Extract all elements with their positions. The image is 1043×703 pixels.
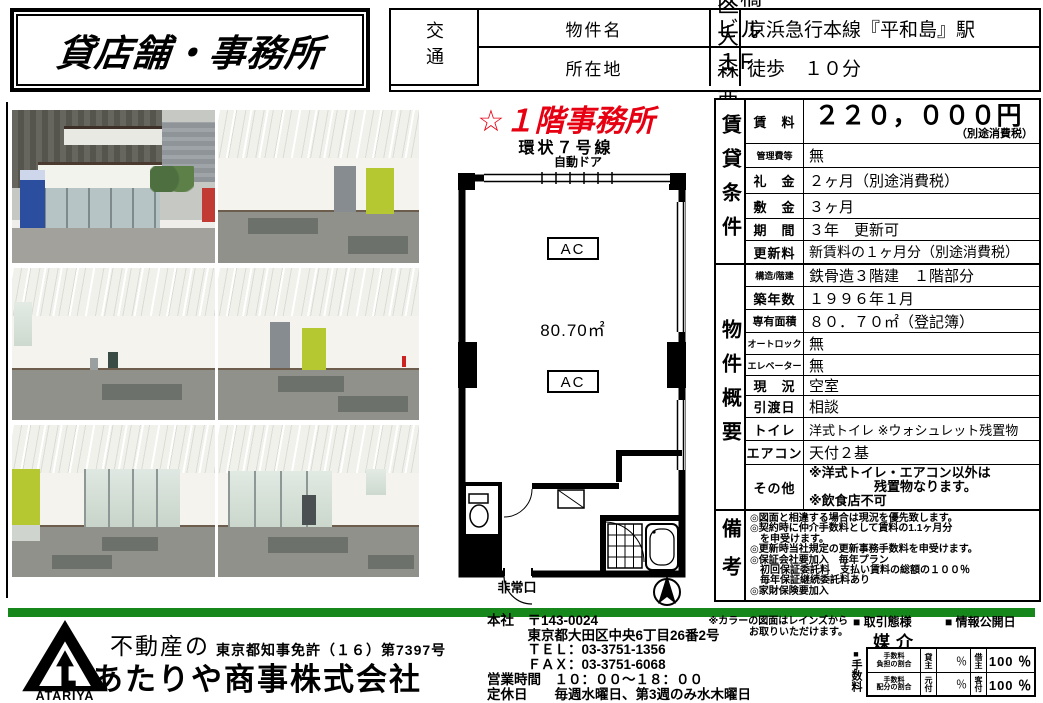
aircon-label: エアコン [746,441,804,464]
overview-section: 物件概要 構造/階建 鉄骨造３階建 １階部分 築年数 １９９６年１月 専有面積 … [716,265,1039,511]
built-year-label: 築年数 [746,287,804,309]
fee-row2-agent-pct: ％ [936,672,970,695]
table-row: 専有面積 ８０．７０㎡（登記簿） [746,310,1039,333]
photo-interior-1 [218,110,419,263]
status-label: 現 況 [746,376,804,395]
fee-row1-lessor: 貸主 [920,649,936,672]
table-row: 現 況 空室 [746,376,1039,396]
table-row: その他 ※洋式トイレ・エアコン以外は 残置物なります。 ※飲食店不可 [746,465,1039,509]
handover-label: 引渡日 [746,396,804,417]
rent-tax-note: （別途消費税） [804,128,1033,140]
title-box: 貸店舗・事務所 [10,8,370,92]
photo-interior-3 [218,268,419,420]
ac-unit-1-label: AC [561,241,586,258]
rent-amount: ２２０，０００円 [804,104,1033,128]
bathtub [646,524,678,570]
fee-row1-name: 手数料 負担の割合 [868,649,920,672]
structure-label: 構造/階建 [746,265,804,286]
elevator-value: 無 [804,355,1039,375]
area-label: 80.70㎡ [540,321,606,340]
floor-area-label: 専有面積 [746,310,804,332]
renewal-fee-label: 更新料 [746,241,804,263]
company-name: あたりや商事株式会社 [92,654,422,699]
property-name-label: 物件名 [479,10,711,48]
table-row: 引渡日 相談 [746,396,1039,418]
overview-section-label: 物件概要 [716,265,746,509]
elevator-label: エレベーター [746,355,804,375]
mgmt-fee-label: 管理費等 [746,144,804,167]
photo-interior-2 [12,268,215,420]
table-row: 礼 金 ２ヶ月（別途消費税） [746,168,1039,194]
logo-text: ATARIYA [36,689,95,702]
ac-unit-2-label: AC [561,374,586,391]
floor-area-value: ８０．７０㎡（登記簿） [804,310,1039,332]
table-row: 敷 金 ３ヶ月 [746,194,1039,219]
table-row: 築年数 １９９６年１月 [746,287,1039,310]
structure-value: 鉄骨造３階建 １階部分 [804,265,1039,286]
photo-interior-4 [12,425,215,577]
aircon-value: 天付２基 [804,441,1039,464]
autolock-label: オートロック [746,333,804,354]
other-value: ※洋式トイレ・エアコン以外は 残置物なります。 ※飲食店不可 [804,465,1039,509]
term-value: ３年 更新可 [804,219,1039,240]
fee-row2-broker: 客付 [970,672,986,695]
key-money-value: ２ヶ月（別途消費税） [804,168,1039,193]
key-money-label: 礼 金 [746,168,804,193]
notes-section-label: 備考 [716,511,746,600]
conditions-table: 賃貸条件 賃 料 ２２０，０００円 （別途消費税） 管理費等 無 礼 金 ２ヶ月… [714,98,1041,602]
rent-section: 賃貸条件 賃 料 ２２０，０００円 （別途消費税） 管理費等 無 礼 金 ２ヶ月… [716,100,1039,265]
renewal-fee-value: 新賃料の１ヶ月分（別途消費税） [804,241,1039,263]
photo-interior-5 [218,425,419,577]
fee-row2-broker-pct: 100 ％ [986,672,1034,695]
photo-exterior [12,110,215,263]
toilet-label: トイレ [746,418,804,440]
exit-opening [504,567,532,578]
handover-value: 相談 [804,396,1039,417]
address-label: 所在地 [479,48,711,86]
table-row: 賃 料 ２２０，０００円 （別途消費税） [746,100,1039,144]
autolock-value: 無 [804,333,1039,354]
term-label: 期 間 [746,219,804,240]
deposit-value: ３ヶ月 [804,194,1039,218]
rent-section-label: 賃貸条件 [716,100,746,263]
table-row: 管理費等 無 [746,144,1039,168]
mgmt-fee-value: 無 [804,144,1039,167]
table-row: 更新料 新賃料の１ヶ月分（別途消費税） [746,241,1039,263]
transport-label: 交通 [391,10,479,86]
north-arrow-icon [654,575,680,605]
auto-door-label: 自動ドア [554,154,602,169]
plan-corner-pillar-tr [669,173,686,190]
fee-row1-lessee-pct: 100 ％ [986,649,1034,672]
title-box-inner: 貸店舗・事務所 [16,14,364,86]
fee-table: 手数料 負担の割合 貸主 ％ 借主 100 ％ 手数料 配分の割合 元付 ％ 客… [866,647,1036,697]
floor-plan: 自動ドア AC 80.70㎡ AC [438,152,710,608]
station-value: 京浜急行本線『平和島』駅 [741,10,1039,48]
table-row: エアコン 天付２基 [746,441,1039,465]
table-row: エレベーター 無 [746,355,1039,376]
left-edge-rule [6,102,8,598]
address-value: 大田区大森西１-６-６ [711,48,741,86]
fee-label: ■ 手数料 [849,649,863,692]
table-row: オートロック 無 [746,333,1039,355]
plan-corner-pillar-tl [458,173,475,190]
publish-date-label: ■ 情報公開日 [945,613,1016,630]
fee-row1-lessee: 借主 [970,649,986,672]
table-row: 期 間 ３年 更新可 [746,219,1039,241]
page-title: 貸店舗・事務所 [54,23,326,77]
rent-label: 賃 料 [746,100,804,143]
emergency-exit-label: 非常口 [497,580,536,595]
walk-value: 徒歩 １０分 [741,48,1039,86]
plan-pillar-right [667,342,686,388]
toilet-value: 洋式トイレ ※ウォシュレット残置物 [804,418,1039,440]
notes-section: 備考 ◎図面と相違する場合は現況を優先致します。 ◎契約時に仲介手数料として賃料… [716,511,1039,600]
fee-row1-lessor-pct: ％ [936,649,970,672]
deposit-label: 敷 金 [746,194,804,218]
property-header-table: 物件名 大橋ビル １F 交通 京浜急行本線『平和島』駅 所在地 大田区大森西１-… [389,8,1041,92]
plan-pillar-left [458,342,477,388]
toilet-tank [469,494,488,503]
status-value: 空室 [804,376,1039,395]
fee-square-mark: ■ [853,649,858,659]
table-row: 構造/階建 鉄骨造３階建 １階部分 [746,265,1039,287]
table-row: トイレ 洋式トイレ ※ウォシュレット残置物 [746,418,1039,441]
other-label: その他 [746,465,804,509]
plan-solid-wall-block [462,536,502,574]
toilet-bowl [470,505,488,527]
fee-row2-agent: 元付 [920,672,936,695]
color-plan-note: ※カラーの図面はレインズから お取りいただけます。 [686,616,848,638]
fee-row2-name: 手数料 配分の割合 [868,672,920,695]
stairs [608,524,642,568]
notes-text: ◎図面と相違する場合は現況を優先致します。 ◎契約時に仲介手数料として賃料の1.… [746,511,1039,600]
built-year-value: １９９６年１月 [804,287,1039,309]
